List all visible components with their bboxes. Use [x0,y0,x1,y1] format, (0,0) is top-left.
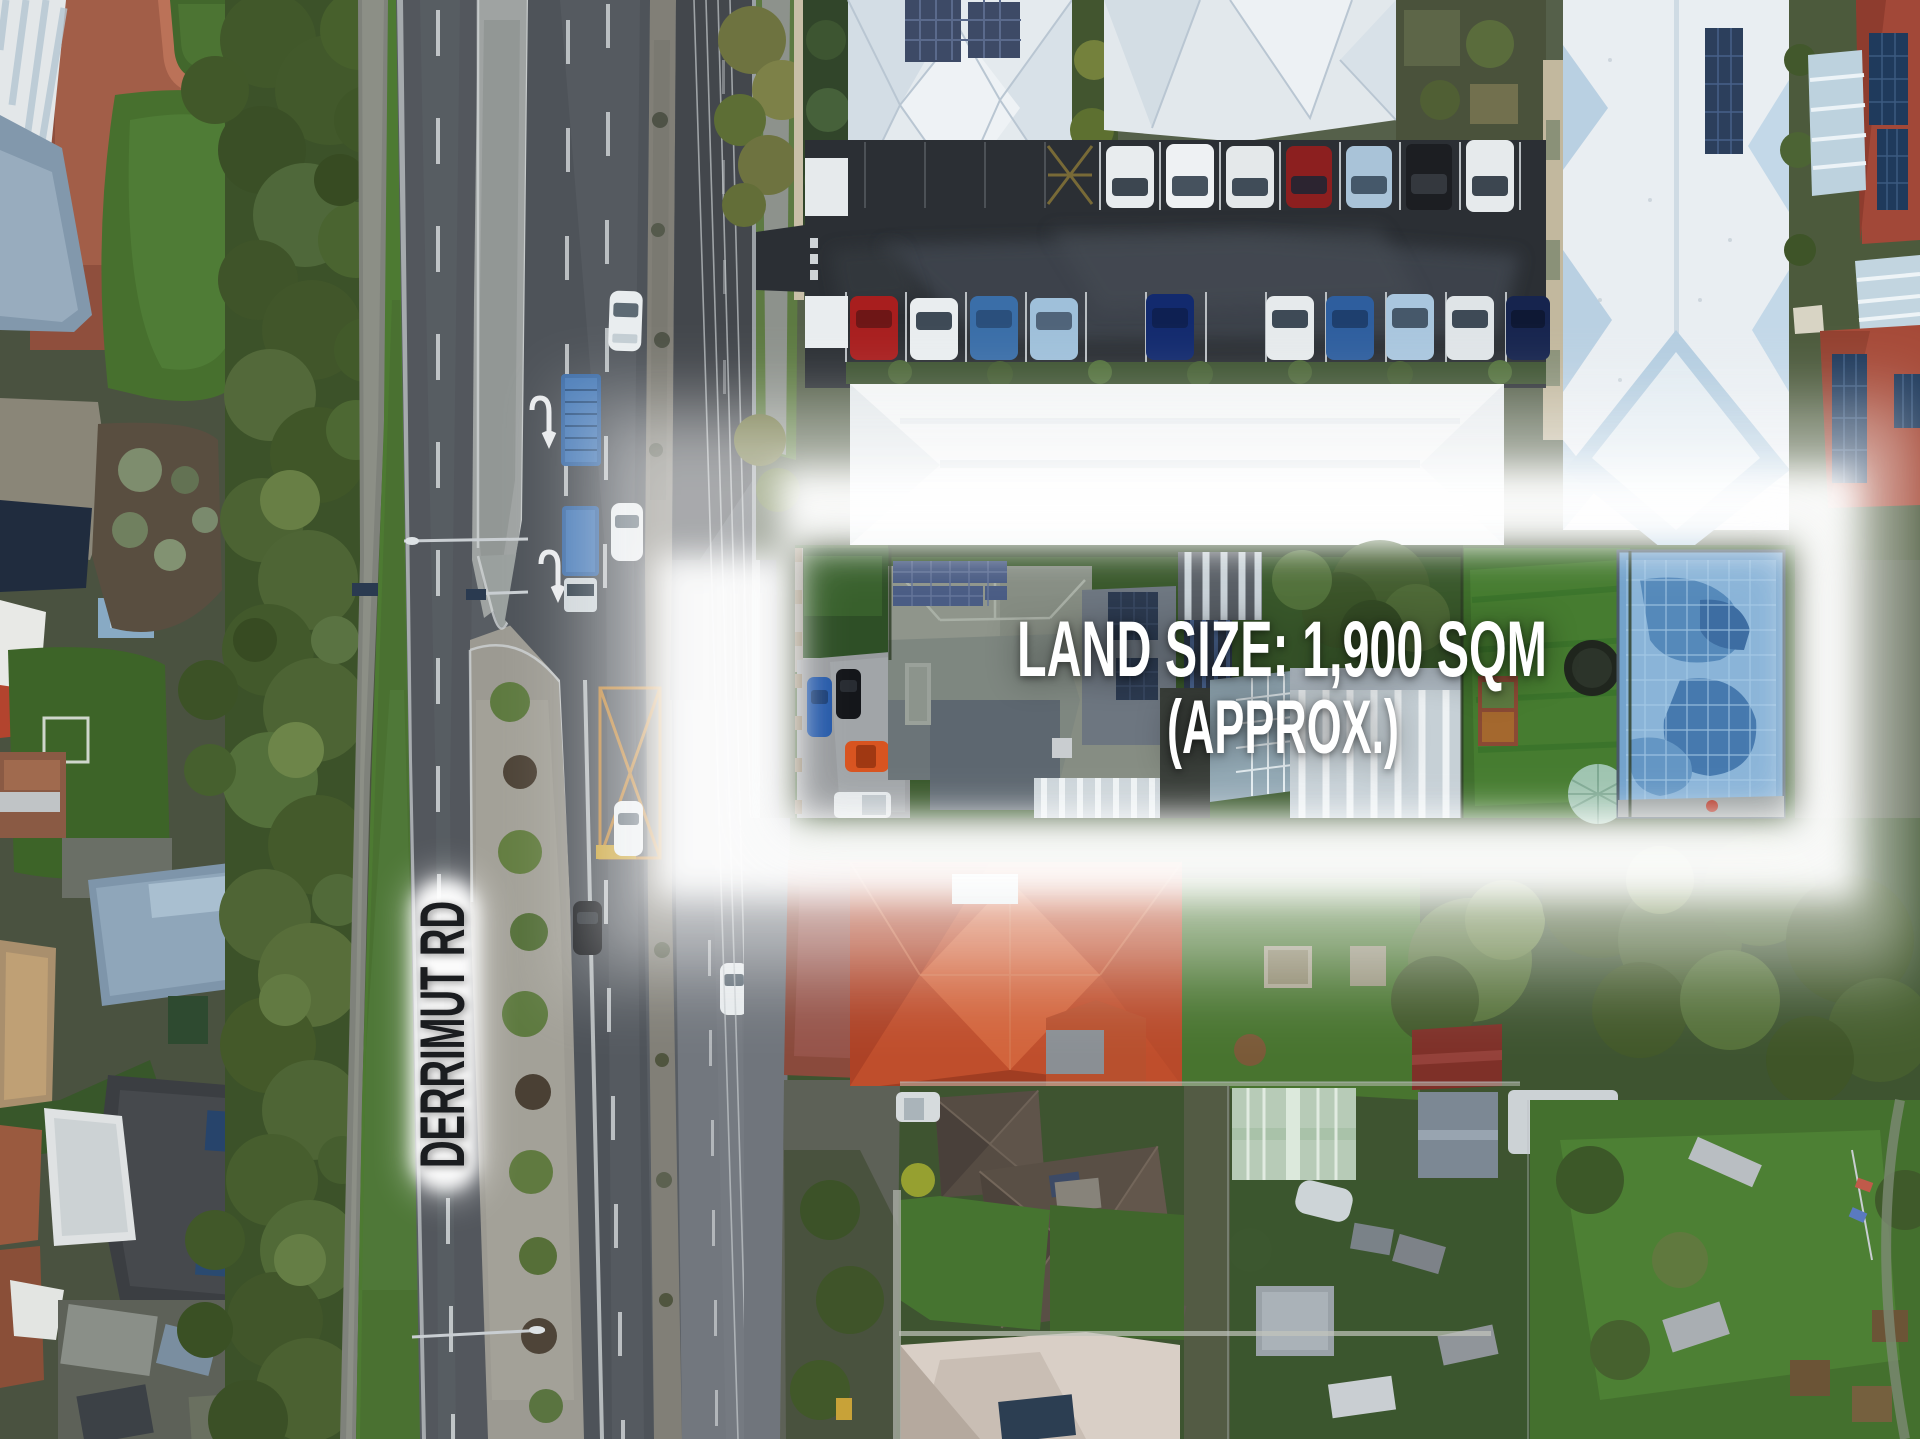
svg-text:LAND SIZE: 1,900 SQM: LAND SIZE: 1,900 SQM [1017,604,1547,693]
svg-text:DERRIMUT RD: DERRIMUT RD [408,901,478,1168]
svg-text:(APPROX.): (APPROX.) [1167,685,1399,770]
